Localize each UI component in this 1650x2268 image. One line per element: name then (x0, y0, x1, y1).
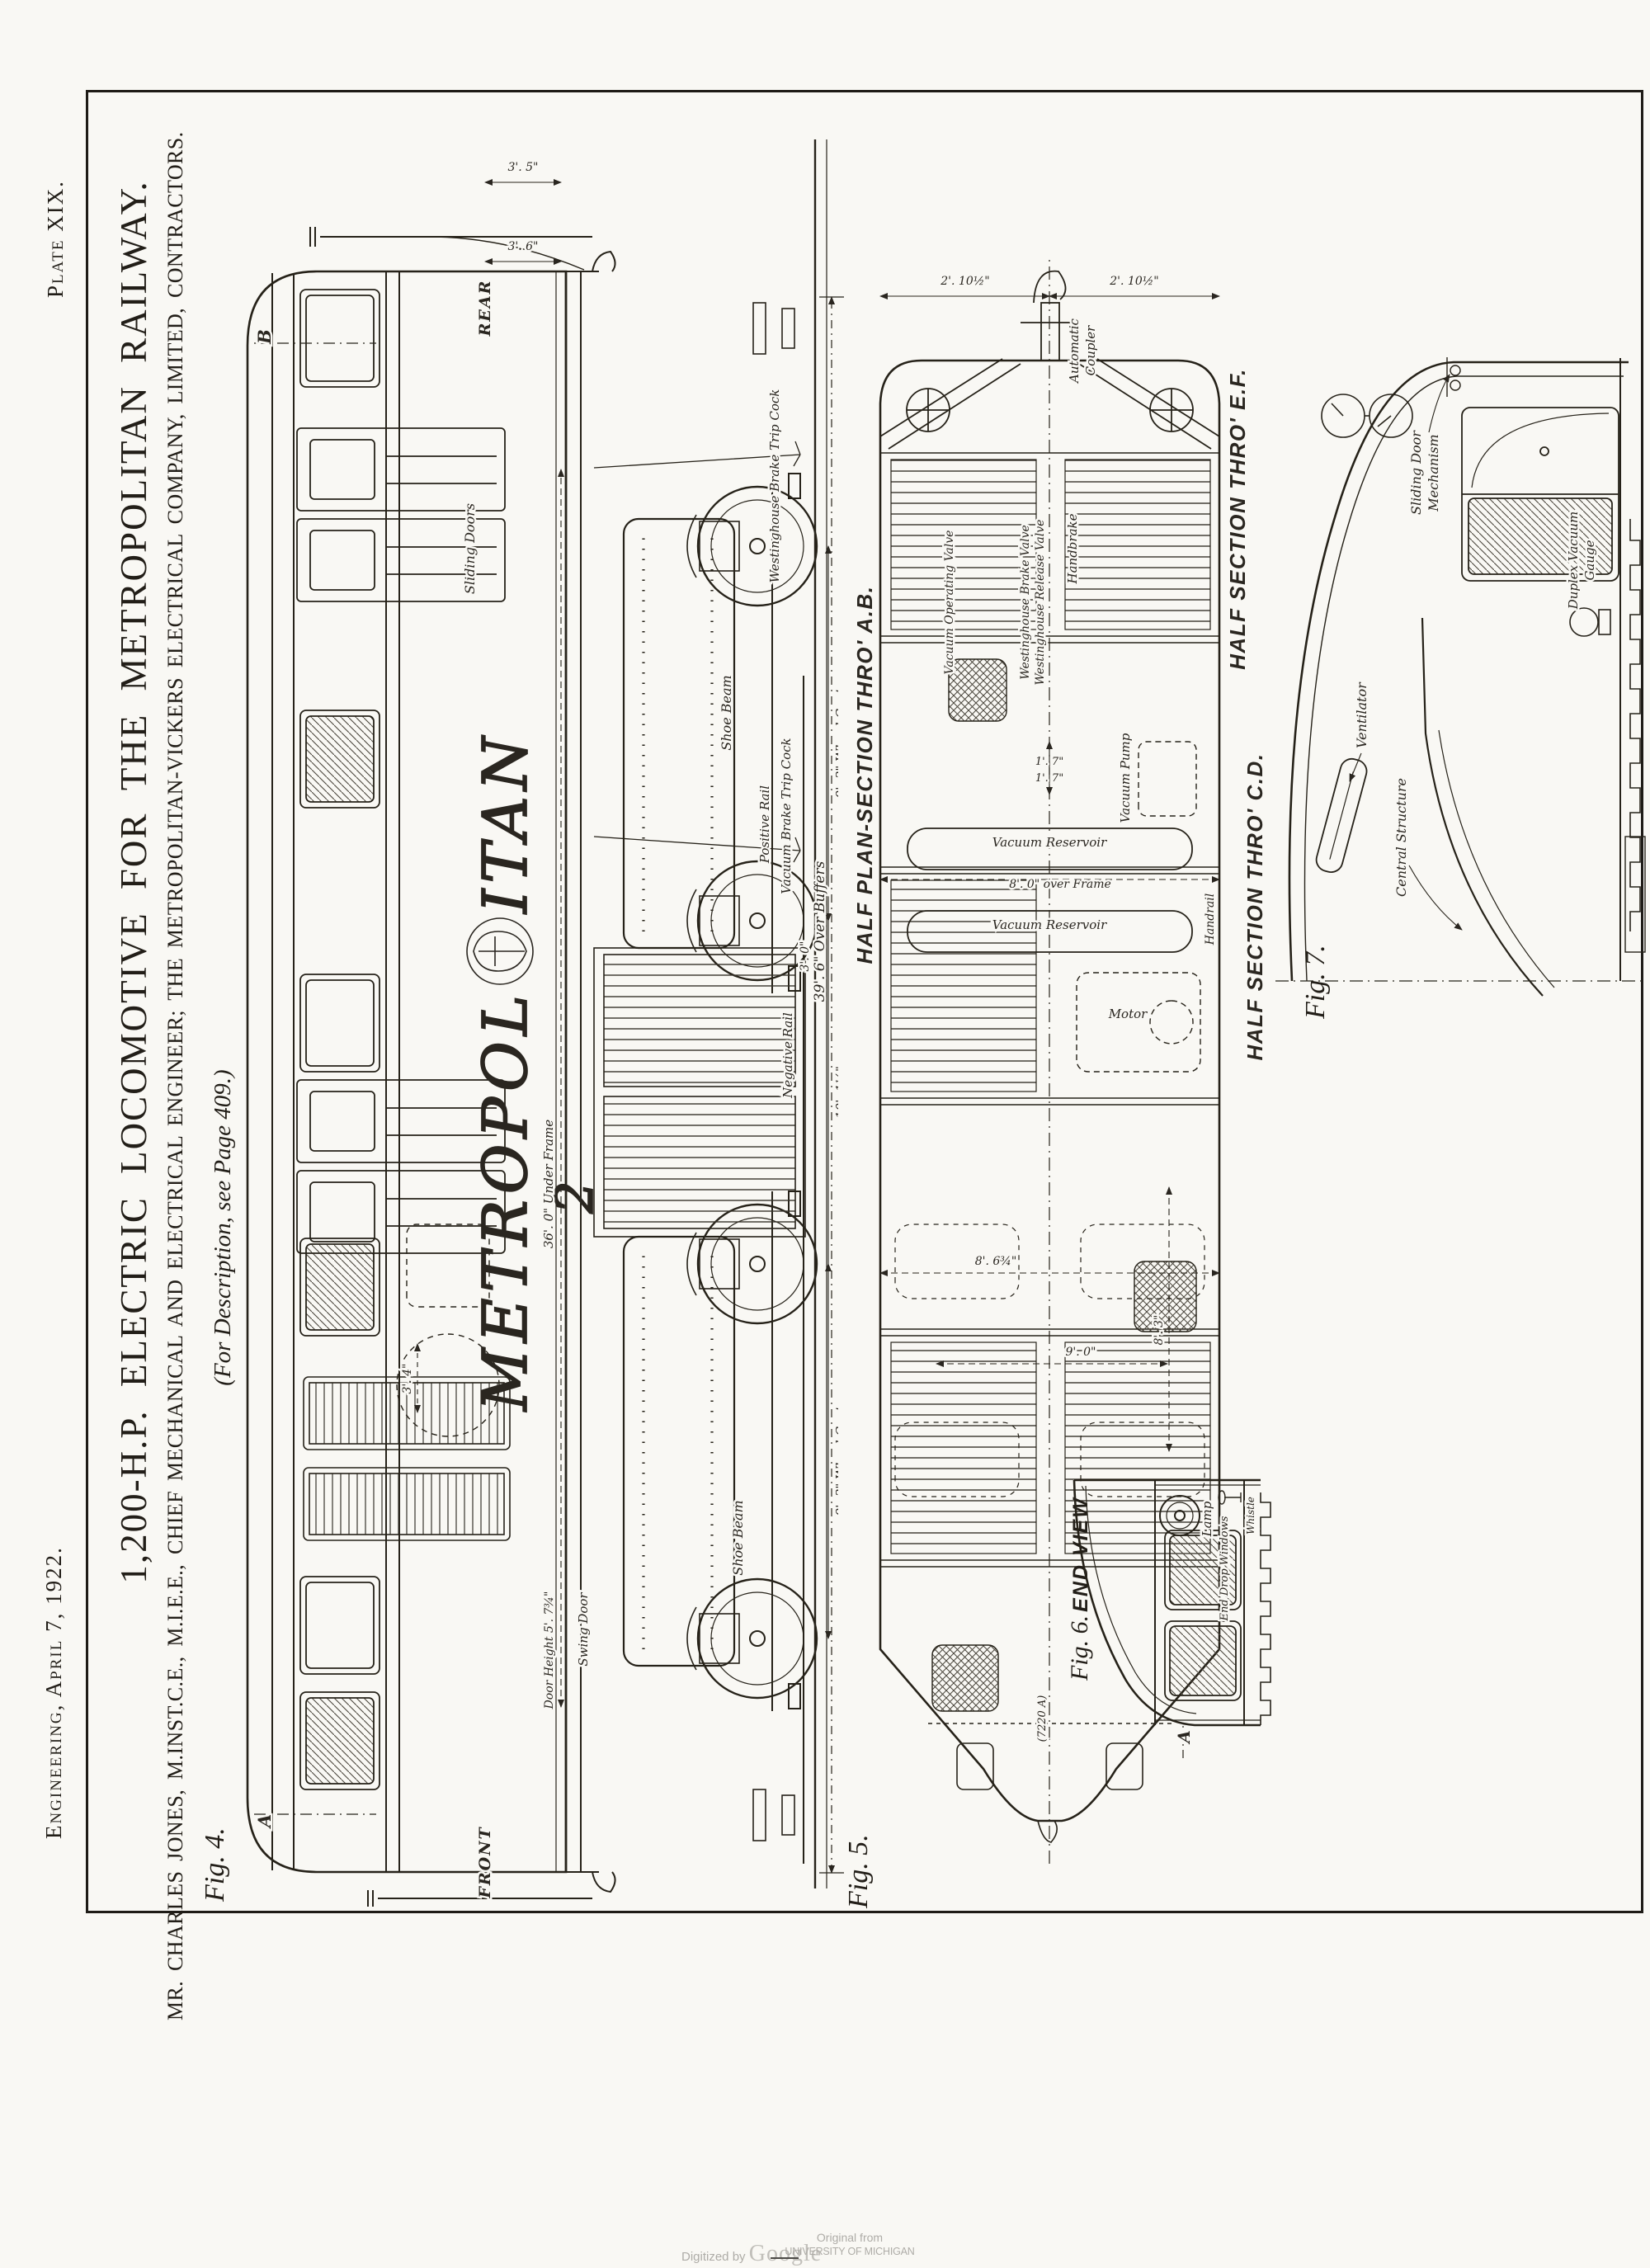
section-a-marker: A (254, 1814, 275, 1829)
digitized-by-text: Digitized by (681, 2250, 746, 2264)
scanned-plate-page: Engineering, April 7, 1922. Plate XIX. 1… (0, 0, 1650, 2268)
original-from-text: Original from (775, 2231, 924, 2245)
ventilator-label: Ventilator (1354, 681, 1369, 748)
dim-3-6: 3'. 6" (507, 240, 538, 253)
vacuum-reservoir-label: Vacuum Reservoir (992, 835, 1107, 850)
duplex-vacuum-gauge-label: Gauge (1582, 540, 1597, 580)
dim-1-7: 1'. 7" (1035, 772, 1063, 785)
section-b-marker: B (254, 329, 275, 345)
whistle-label: Whistle (1245, 1497, 1256, 1535)
footboard-teeth (1630, 519, 1640, 931)
plan-coupler-hook (1038, 1821, 1057, 1842)
dim-8-6: 8'. 6¾" (975, 1255, 1017, 1268)
rear-label: REAR (476, 280, 494, 337)
dim-2-10: 2'. 10½" (1109, 275, 1158, 288)
plate-number: Plate XIX. (43, 180, 68, 298)
roof-ventilator (1313, 757, 1369, 875)
svg-text:METROPOL: METROPOL (470, 989, 541, 1412)
automatic-coupler-label: Automatic (1067, 318, 1082, 384)
half-plan-ab-title: HALF PLAN-SECTION THRO' A.B. (852, 586, 877, 964)
shoe-beam-label: Shoe Beam (719, 675, 734, 750)
duplex-vacuum-gauge-label: Duplex Vacuum (1566, 512, 1581, 611)
vacuum-trip-label: Vacuum Brake Trip Cock (779, 738, 794, 894)
vacuum-pump-label: Vacuum Pump (1118, 733, 1133, 823)
wheels (698, 487, 817, 1698)
footer-underline-mark (771, 2257, 799, 2259)
dim-1-7: 1'. 7" (1035, 756, 1063, 768)
sliding-doors-label: Sliding Doors (462, 503, 478, 594)
dim-9-0: 9'. 0" (1065, 1346, 1096, 1359)
plate-subtitle: MR. CHARLES JONES, M.INST.C.E., M.I.E.E.… (163, 156, 188, 2020)
vacuum-operating-valve-label: Vacuum Operating Valve (943, 530, 956, 675)
lamp-label: Lamp (1200, 1501, 1214, 1537)
motor-label: Motor (1108, 1007, 1148, 1021)
duplex-vacuum-gauge-device (1570, 608, 1610, 636)
front-coupler-hook (592, 1872, 615, 1892)
metropolitan-crest (467, 918, 533, 984)
door-height-dim: Door Height 5'. 7¾" (543, 1591, 556, 1710)
duplex-gauges (1322, 394, 1412, 437)
headlamp (1160, 1496, 1200, 1535)
swing-door-label: Swing Door (576, 1592, 591, 1667)
central-structure-label: Central Structure (1393, 778, 1409, 897)
svg-text:ITAN: ITAN (470, 731, 541, 915)
original-from-footer: Original from UNIVERSITY OF MICHIGAN (775, 2231, 924, 2259)
plate-title: 1,200-H.P. ELECTRIC LOCOMOTIVE FOR THE M… (112, 73, 155, 1690)
sliding-door-mechanism-label: Sliding Door (1408, 430, 1424, 515)
handrail-label: Handrail (1204, 894, 1217, 946)
journal-date-header: Engineering, April 7, 1922. (41, 1546, 67, 1839)
whistle-device (1219, 1491, 1241, 1504)
westinghouse-trip-label: Westinghouse Brake Trip Cock (767, 389, 782, 583)
end-drop-windows-label: End Drop Windows (1219, 1516, 1231, 1621)
positive-rail-label: Positive Rail (757, 785, 772, 864)
dim-3-5: 3'. 5" (507, 161, 538, 174)
resistance-grids (891, 460, 1210, 1554)
vacuum-reservoir-label: Vacuum Reservoir (992, 917, 1107, 932)
rear-coupler-hook (592, 252, 615, 271)
half-section-ef-title: HALF SECTION THRO' E.F. (1225, 368, 1250, 670)
fig6-end-view: Lamp Whistle End Drop Windows A (1049, 1451, 1297, 1806)
section-a-marker: A (1174, 1730, 1194, 1745)
fig4-windows (300, 290, 379, 1789)
rear-standpipe (310, 227, 592, 247)
dim-3-4: 3'. 4" (401, 1363, 414, 1393)
dim-3-0: 3'. 0" (799, 941, 812, 971)
underframe-dim: 36'. 0" Under Frame (541, 1120, 556, 1248)
sliding-door-mechanism-label: Mechanism (1426, 434, 1441, 512)
buffer-teeth (1261, 1492, 1270, 1725)
shoe-beam-label: Shoe Beam (730, 1500, 746, 1575)
westinghouse-brake-valve-label: Westinghouse Brake Valve (1019, 525, 1032, 680)
motor-outline (1077, 742, 1200, 1072)
dim-8-0-frame: 8'. 0" over Frame (1009, 878, 1111, 891)
fig4-caption: Fig. 4. (200, 1827, 231, 1902)
westinghouse-release-valve-label: Westinghouse Release Valve (1034, 520, 1047, 686)
front-label: FRONT (476, 1826, 494, 1898)
dim-2-10: 2'. 10½" (940, 275, 989, 288)
dim-8-3: 8'. 3" (1153, 1314, 1166, 1345)
metropolitan-lettering: METROPOL ITAN 2 (467, 731, 605, 1412)
description-note: (For Description, see Page 409.) (210, 970, 237, 1485)
fig4-side-elevation: METROPOL ITAN 2 FRONT REAR A B Sliding D… (238, 115, 838, 1913)
central-structure-arch (1422, 618, 1543, 996)
drawing-number: (7220 A) (1036, 1695, 1049, 1742)
fig7-half-section: Ventilator Central Structure Sliding Doo… (1264, 123, 1650, 1030)
automatic-coupler-label: Coupler (1083, 325, 1098, 375)
landscape-plate: Engineering, April 7, 1922. Plate XIX. 1… (0, 0, 1650, 2268)
fig4-equipment-bay (594, 948, 805, 1237)
over-buffers-dim: 39'. 6" Over Buffers (813, 861, 828, 1002)
handbrake-label: Handbrake (1065, 513, 1080, 584)
negative-rail-label: Negative Rail (780, 1012, 795, 1099)
